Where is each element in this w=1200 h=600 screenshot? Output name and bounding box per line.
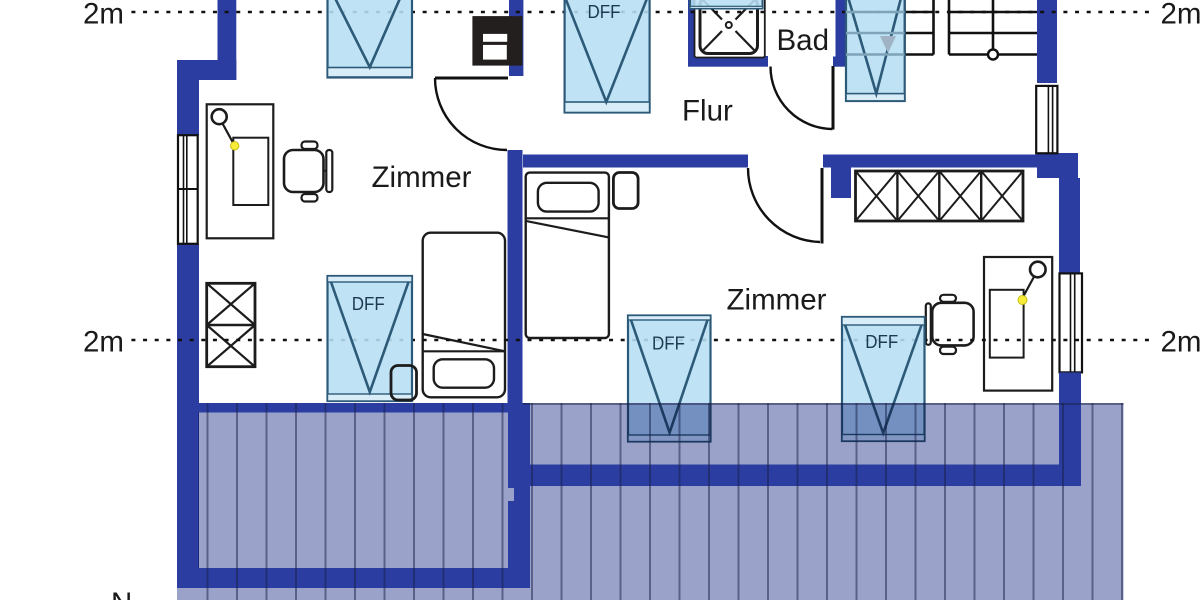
- svg-text:Zimmer: Zimmer: [372, 161, 472, 194]
- svg-text:Zimmer: Zimmer: [727, 284, 827, 317]
- svg-text:DFF: DFF: [588, 1, 621, 22]
- svg-text:DFF: DFF: [352, 293, 385, 314]
- svg-text:2m: 2m: [83, 0, 124, 31]
- svg-text:Flur: Flur: [682, 95, 733, 128]
- svg-text:2m: 2m: [1161, 0, 1200, 31]
- svg-text:N: N: [111, 587, 132, 600]
- svg-text:Bad: Bad: [777, 24, 830, 57]
- svg-text:2m: 2m: [83, 326, 124, 359]
- svg-text:DFF: DFF: [652, 333, 685, 354]
- svg-text:DFF: DFF: [865, 331, 898, 352]
- svg-text:2m: 2m: [1161, 326, 1200, 359]
